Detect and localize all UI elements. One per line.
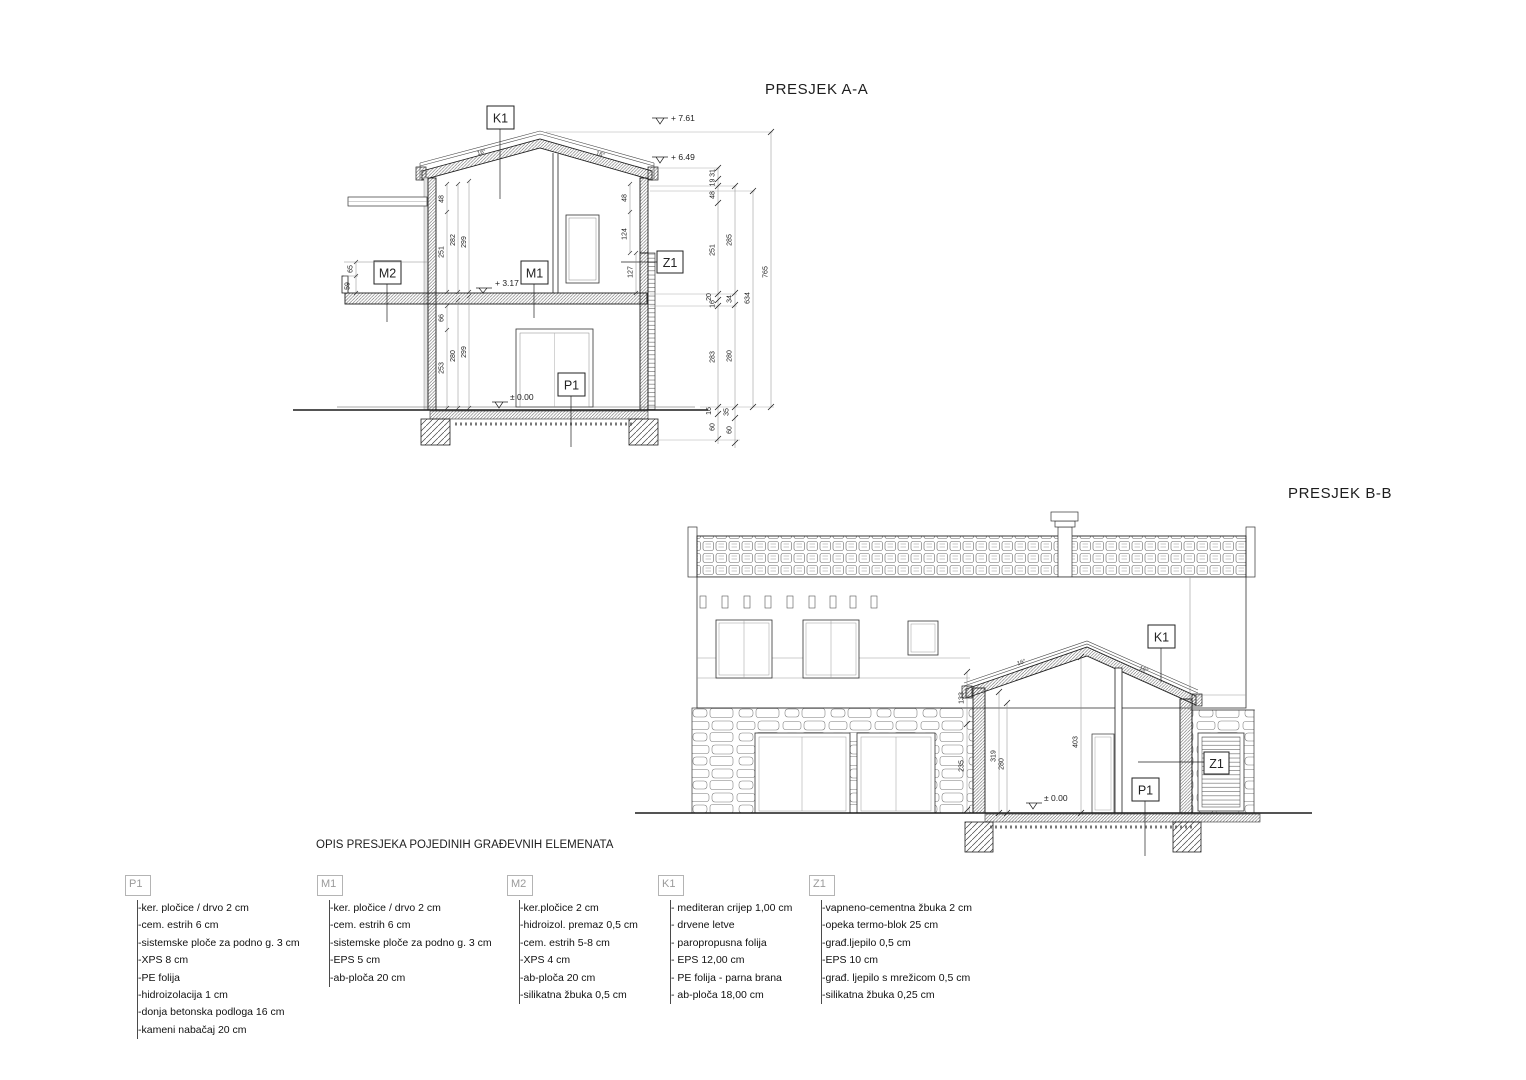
elevation-ground-b: ± 0.00 [1026, 793, 1068, 809]
svg-text:M2: M2 [379, 267, 396, 281]
drawing-sheet: PRESJEK A-A PRESJEK B-B OPIS PRESJEKA PO… [0, 0, 1526, 1080]
legend-column-z1: Z1 vapneno-cementna žbuka 2 cm opeka ter… [809, 875, 972, 1004]
legend-item: građ.ljepilo 0,5 cm [822, 935, 972, 952]
svg-text:253: 253 [439, 362, 446, 374]
legend-item: PE folija [138, 970, 300, 987]
svg-text:66: 66 [439, 314, 446, 322]
svg-text:251: 251 [710, 244, 717, 256]
legend-box-k1: K1 [658, 875, 684, 896]
pergola-a [348, 197, 427, 206]
svg-text:280: 280 [999, 758, 1006, 770]
svg-text:403: 403 [1073, 736, 1080, 748]
section-a-drawing: 16° 16° [293, 106, 774, 448]
legend-item: hidroizol. premaz 0,5 cm [520, 917, 638, 934]
legend-item: silikatna žbuka 0,25 cm [822, 987, 972, 1004]
svg-text:60: 60 [727, 426, 734, 434]
svg-text:16: 16 [706, 407, 713, 415]
elevation-floor-a: + 3.17 [476, 278, 519, 293]
svg-text:65: 65 [348, 265, 355, 273]
svg-text:280: 280 [727, 350, 734, 362]
svg-text:35: 35 [724, 408, 731, 416]
svg-text:235: 235 [959, 760, 966, 772]
legend-item: cem. estrih 5-8 cm [520, 935, 638, 952]
legend-item: mediteran crijep 1,00 cm [671, 900, 792, 917]
svg-text:48: 48 [622, 194, 629, 202]
svg-text:K1: K1 [493, 112, 508, 126]
legend-column-p1: P1 ker. pločice / drvo 2 cm cem. estrih … [125, 875, 300, 1039]
legend-item: donja betonska podloga 16 cm [138, 1004, 300, 1021]
legend-item: ab-ploča 18,00 cm [671, 987, 792, 1004]
legend-item: ker. pločice / drvo 2 cm [330, 900, 492, 917]
legend-item: paropropusna folija [671, 935, 792, 952]
legend-item: ab-ploča 20 cm [330, 970, 492, 987]
svg-text:251: 251 [439, 246, 446, 258]
svg-text:P1: P1 [564, 379, 579, 393]
legend-column-m1: M1 ker. pločice / drvo 2 cm cem. estrih … [317, 875, 492, 987]
ground-b [635, 813, 1312, 852]
roof-a [416, 131, 658, 180]
svg-text:Z1: Z1 [1209, 757, 1224, 771]
svg-text:M1: M1 [526, 267, 543, 281]
svg-text:48: 48 [439, 195, 446, 203]
svg-text:+ 3.17: + 3.17 [495, 278, 519, 288]
legend-item: XPS 8 cm [138, 952, 300, 969]
svg-text:765: 765 [763, 266, 770, 278]
legend-column-k1: K1 mediteran crijep 1,00 cm drvene letve… [658, 875, 792, 1004]
legend-box-p1: P1 [125, 875, 151, 896]
svg-text:59: 59 [345, 282, 352, 290]
legend-item: drvene letve [671, 917, 792, 934]
legend-item: ker. pločice / drvo 2 cm [138, 900, 300, 917]
legend-item: kameni nabačaj 20 cm [138, 1022, 300, 1039]
legend-items-m2: ker.pločice 2 cm hidroizol. premaz 0,5 c… [519, 900, 638, 1004]
chimney-b [1058, 527, 1072, 577]
svg-text:Z1: Z1 [663, 256, 678, 270]
svg-text:60: 60 [710, 423, 717, 431]
vent-row-b [700, 596, 877, 608]
svg-text:127: 127 [628, 266, 635, 278]
legend-items-m1: ker. pločice / drvo 2 cm cem. estrih 6 c… [329, 900, 492, 987]
legend-items-p1: ker. pločice / drvo 2 cm cem. estrih 6 c… [137, 900, 300, 1039]
svg-text:282: 282 [450, 234, 457, 246]
legend-box-m2: M2 [507, 875, 533, 896]
svg-text:280: 280 [450, 350, 457, 362]
legend-items-z1: vapneno-cementna žbuka 2 cm opeka termo-… [821, 900, 972, 1004]
svg-text:P1: P1 [1138, 784, 1153, 798]
svg-text:± 0.00: ± 0.00 [1044, 793, 1068, 803]
svg-text:K1: K1 [1154, 631, 1169, 645]
legend-item: PE folija - parna brana [671, 970, 792, 987]
glass-doors-b [755, 733, 935, 813]
legend-box-m1: M1 [317, 875, 343, 896]
ground-a [293, 407, 708, 445]
legend-item: cem. estrih 6 cm [330, 917, 492, 934]
elevation-eave-a: + 6.49 [652, 152, 695, 163]
svg-text:133: 133 [959, 692, 966, 704]
legend-item: opeka termo-blok 25 cm [822, 917, 972, 934]
svg-text:319: 319 [991, 750, 998, 762]
svg-text:48: 48 [710, 191, 717, 199]
svg-text:634: 634 [745, 292, 752, 304]
legend-item: ker.pločice 2 cm [520, 900, 638, 917]
svg-text:299: 299 [461, 236, 468, 248]
svg-text:19: 19 [710, 179, 717, 187]
legend-item: ab-ploča 20 cm [520, 970, 638, 987]
legend-item: hidroizolacija 1 cm [138, 987, 300, 1004]
svg-text:31: 31 [710, 169, 717, 177]
legend-item: građ. ljepilo s mrežicom 0,5 cm [822, 970, 972, 987]
svg-text:124: 124 [622, 228, 629, 240]
svg-text:+ 6.49: + 6.49 [671, 152, 695, 162]
label-m2-a: M2 [374, 261, 401, 322]
svg-text:285: 285 [727, 234, 734, 246]
svg-text:34: 34 [727, 295, 734, 303]
interior-door-b [1092, 734, 1114, 813]
legend-item: EPS 12,00 cm [671, 952, 792, 969]
svg-text:20: 20 [706, 293, 713, 301]
legend-item: vapneno-cementna žbuka 2 cm [822, 900, 972, 917]
legend-item: sistemske ploče za podno g. 3 cm [138, 935, 300, 952]
svg-text:283: 283 [710, 351, 717, 363]
legend-item: silikatna žbuka 0,5 cm [520, 987, 638, 1004]
elevation-ridge-a: + 7.61 [652, 113, 695, 124]
svg-text:+ 7.61: + 7.61 [671, 113, 695, 123]
svg-text:299: 299 [461, 346, 468, 358]
section-b-drawing: 16° 16° K1 [635, 512, 1312, 856]
legend-item: EPS 10 cm [822, 952, 972, 969]
label-m1-a: M1 [521, 261, 548, 318]
svg-text:16: 16 [710, 300, 717, 308]
legend-box-z1: Z1 [809, 875, 835, 896]
upper-window-a [566, 215, 599, 283]
svg-text:± 0.00: ± 0.00 [510, 392, 534, 402]
legend-item: cem. estrih 6 cm [138, 917, 300, 934]
legend-items-k1: mediteran crijep 1,00 cm drvene letve pa… [670, 900, 792, 1004]
legend-item: EPS 5 cm [330, 952, 492, 969]
legend-item: sistemske ploče za podno g. 3 cm [330, 935, 492, 952]
legend-item: XPS 4 cm [520, 952, 638, 969]
legend-column-m2: M2 ker.pločice 2 cm hidroizol. premaz 0,… [507, 875, 638, 1004]
